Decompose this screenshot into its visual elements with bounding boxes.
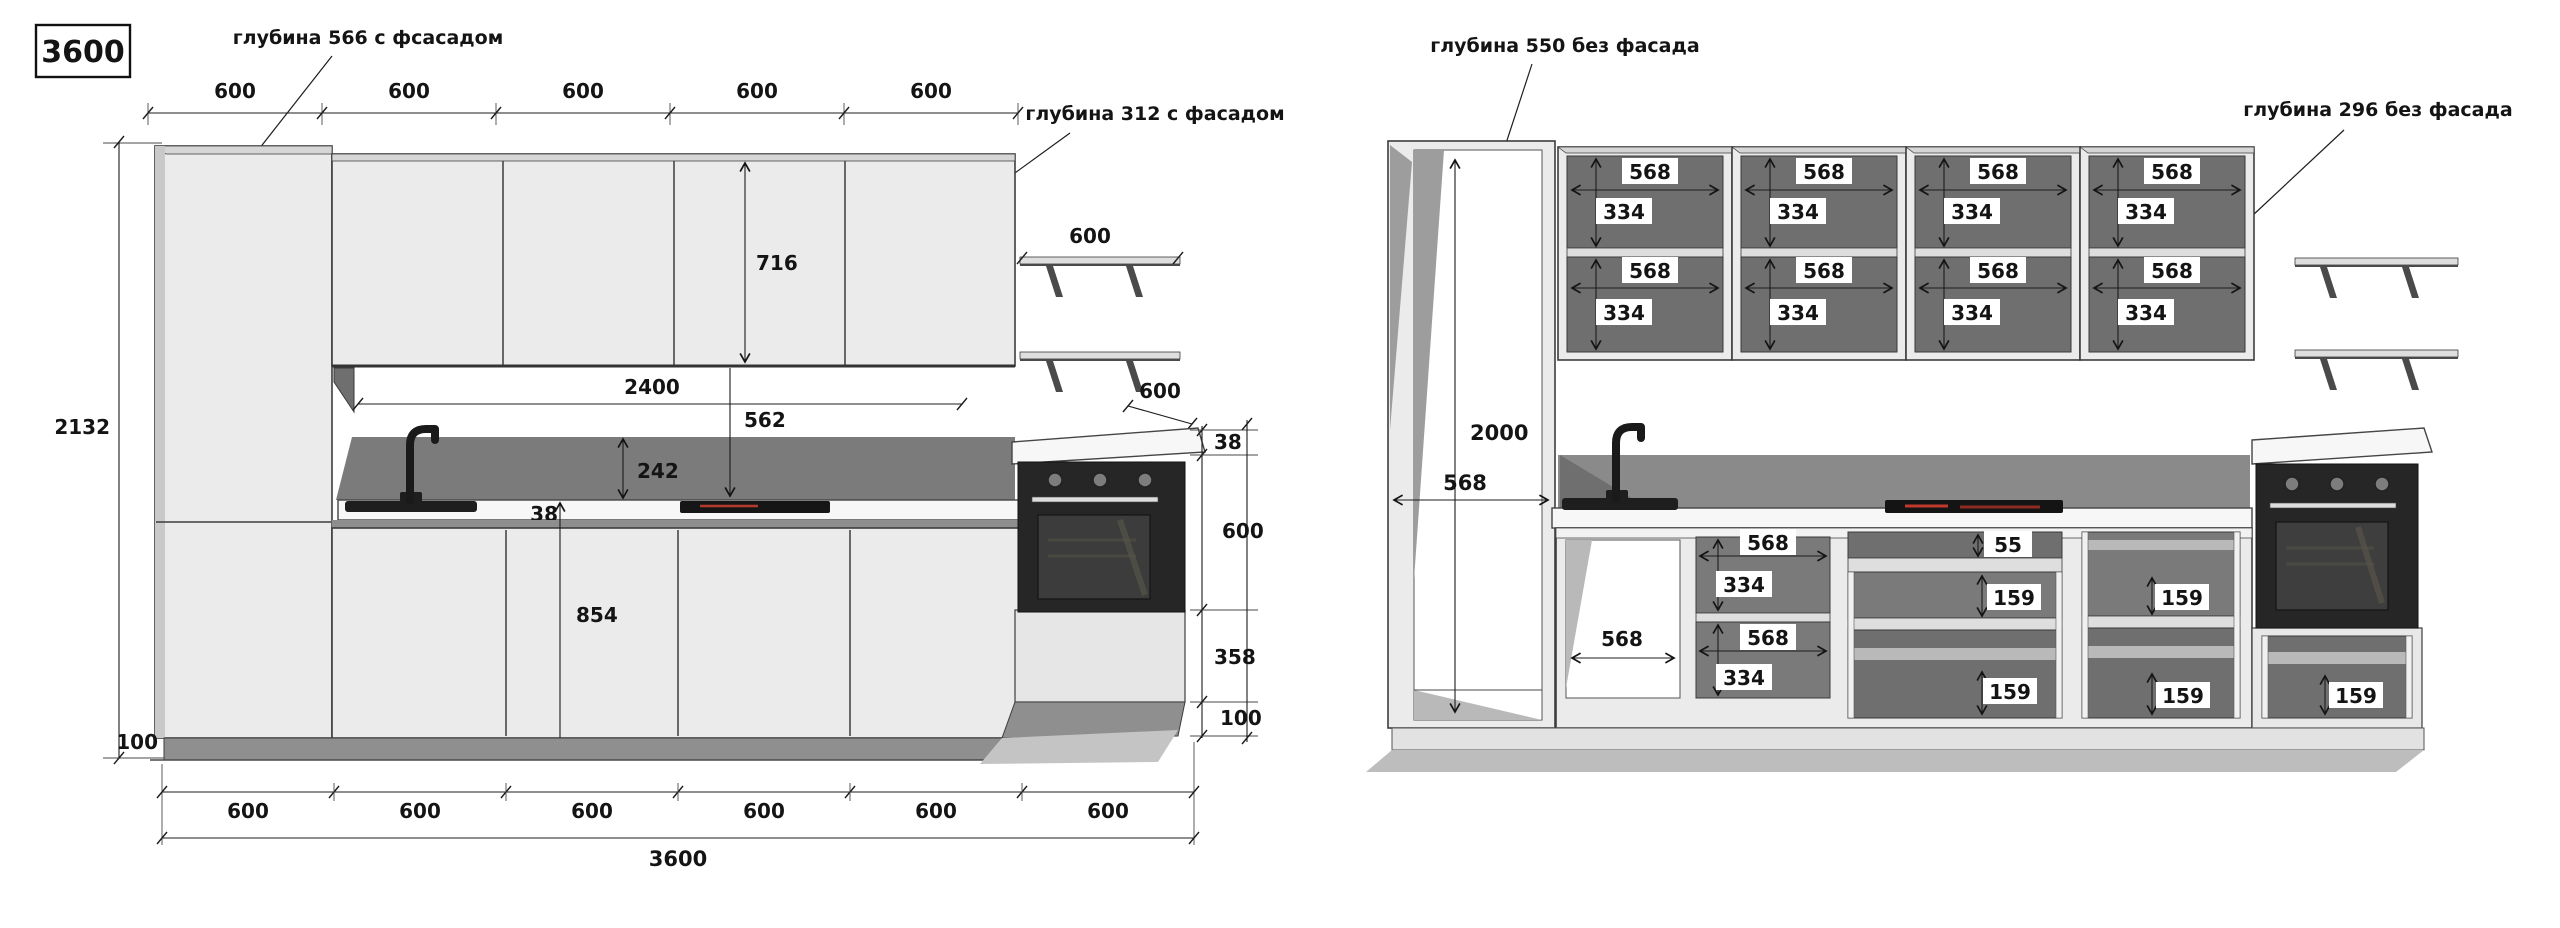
svg-text:55: 55	[1994, 533, 2022, 557]
svg-text:600: 600	[399, 799, 441, 823]
svg-text:334: 334	[1951, 301, 1993, 325]
tall-cabinet-open: 2000 568	[1388, 141, 1555, 728]
title-scale-label: 3600	[41, 35, 125, 70]
svg-text:2400: 2400	[624, 375, 680, 399]
shelf-depth-dimension: 600	[1123, 379, 1197, 430]
cooktop	[1885, 500, 2063, 513]
svg-text:159: 159	[1989, 680, 2031, 704]
svg-text:334: 334	[1723, 573, 1765, 597]
svg-text:глубина 296 без фасада: глубина 296 без фасада	[2243, 99, 2512, 121]
upper-cabinet-open: 568 334 568 334	[1906, 147, 2080, 360]
svg-text:38: 38	[1214, 430, 1242, 454]
upper-cabinet-open: 568 334 568 334	[1732, 147, 1906, 360]
svg-text:600: 600	[743, 799, 785, 823]
svg-text:600: 600	[1222, 519, 1264, 543]
base-carcasses: 568 568 334 568 334	[1556, 528, 2252, 728]
base-cabinets	[332, 520, 1020, 738]
svg-text:600: 600	[571, 799, 613, 823]
svg-text:600: 600	[227, 799, 269, 823]
svg-text:600: 600	[1087, 799, 1129, 823]
svg-text:568: 568	[1629, 259, 1671, 283]
svg-text:глубина 312 с фасадом: глубина 312 с фасадом	[1025, 103, 1284, 125]
oven-handle	[2270, 503, 2396, 508]
svg-text:242: 242	[637, 459, 679, 483]
svg-text:2000: 2000	[1470, 421, 1528, 445]
plinth	[1392, 728, 2424, 750]
svg-text:600: 600	[915, 799, 957, 823]
svg-text:600: 600	[1069, 224, 1111, 248]
svg-text:334: 334	[1777, 301, 1819, 325]
svg-text:562: 562	[744, 408, 786, 432]
svg-text:600: 600	[736, 79, 778, 103]
svg-text:568: 568	[1977, 160, 2019, 184]
svg-text:568: 568	[2151, 160, 2193, 184]
svg-text:600: 600	[1139, 379, 1181, 403]
svg-text:159: 159	[1993, 586, 2035, 610]
sink-cabinet-open: 568	[1566, 540, 1680, 698]
svg-text:2132: 2132	[54, 415, 110, 439]
oven-knob	[2375, 477, 2389, 491]
svg-text:568: 568	[1747, 531, 1789, 555]
svg-text:568: 568	[1747, 626, 1789, 650]
total-length-label: 3600	[649, 847, 707, 871]
svg-text:568: 568	[1803, 259, 1845, 283]
kitchen-drawing-sheet: 3600 глубина 566 с фсасадом глубина 312 …	[0, 0, 2560, 928]
svg-text:600: 600	[214, 79, 256, 103]
svg-text:568: 568	[1601, 627, 1643, 651]
svg-text:334: 334	[2125, 301, 2167, 325]
svg-text:600: 600	[562, 79, 604, 103]
svg-text:568: 568	[1629, 160, 1671, 184]
tall-cabinet	[155, 146, 332, 738]
svg-text:глубина 550 без фасада: глубина 550 без фасада	[1430, 35, 1699, 57]
svg-text:358: 358	[1214, 645, 1256, 669]
top-dimension-chain: 600 600 600 600 600	[143, 79, 1023, 125]
svg-text:159: 159	[2162, 684, 2204, 708]
svg-text:334: 334	[1603, 200, 1645, 224]
oven-knob	[1048, 473, 1062, 487]
drawing-canvas: 3600 глубина 566 с фсасадом глубина 312 …	[0, 0, 2560, 928]
left-view: 3600 глубина 566 с фсасадом глубина 312 …	[36, 25, 1285, 871]
plinth-height-label: 100	[116, 730, 158, 754]
wall-shelf-upper	[2295, 258, 2458, 298]
oven-handle	[1032, 497, 1158, 502]
svg-text:159: 159	[2335, 684, 2377, 708]
svg-text:854: 854	[576, 603, 618, 627]
svg-text:600: 600	[388, 79, 430, 103]
upper-cabinet-open: 568 334 568 334	[1558, 147, 1732, 360]
drawer-cabinet-open: 55 159 159	[1848, 531, 2062, 718]
upper-cabinet-open: 568 334 568 334	[2080, 147, 2254, 360]
svg-text:334: 334	[1777, 200, 1819, 224]
wall-shelf-upper: 600	[1017, 224, 1183, 297]
plinth	[164, 738, 1015, 760]
wall-shelf-lower	[2295, 350, 2458, 390]
svg-text:159: 159	[2161, 586, 2203, 610]
oven-knob	[2330, 477, 2344, 491]
svg-text:716: 716	[756, 251, 798, 275]
svg-text:568: 568	[2151, 259, 2193, 283]
oven-knob	[2285, 477, 2299, 491]
svg-text:глубина 566 с фсасадом: глубина 566 с фсасадом	[233, 27, 503, 49]
svg-text:334: 334	[1723, 666, 1765, 690]
upper-cabinets	[332, 154, 1015, 412]
svg-text:334: 334	[2125, 200, 2167, 224]
cooktop	[680, 501, 830, 513]
svg-text:600: 600	[910, 79, 952, 103]
oven-knob	[1093, 473, 1107, 487]
title-scale-box: 3600	[36, 25, 130, 77]
svg-text:568: 568	[1443, 471, 1487, 495]
oven-unit-open: 159	[2252, 428, 2432, 728]
floor-shadow	[1366, 750, 2424, 772]
annotation-upper-depth-open: глубина 296 без фасада	[2243, 99, 2512, 216]
svg-text:568: 568	[1977, 259, 2019, 283]
right-view: глубина 550 без фасада глубина 296 без ф…	[1366, 35, 2513, 772]
splash-length-dimension: 2400	[353, 375, 967, 410]
drawer-cabinet-open: 159 159	[2082, 532, 2240, 718]
svg-text:100: 100	[1220, 706, 1262, 730]
svg-text:334: 334	[1951, 200, 1993, 224]
right-dimension-column: 38 600 358 100	[1190, 418, 1264, 744]
oven-knob	[1138, 473, 1152, 487]
shelf-cabinet-open: 568 334 568 334	[1696, 529, 1830, 698]
svg-text:568: 568	[1803, 160, 1845, 184]
oven-drawer-open: 159	[2262, 636, 2412, 718]
svg-text:334: 334	[1603, 301, 1645, 325]
